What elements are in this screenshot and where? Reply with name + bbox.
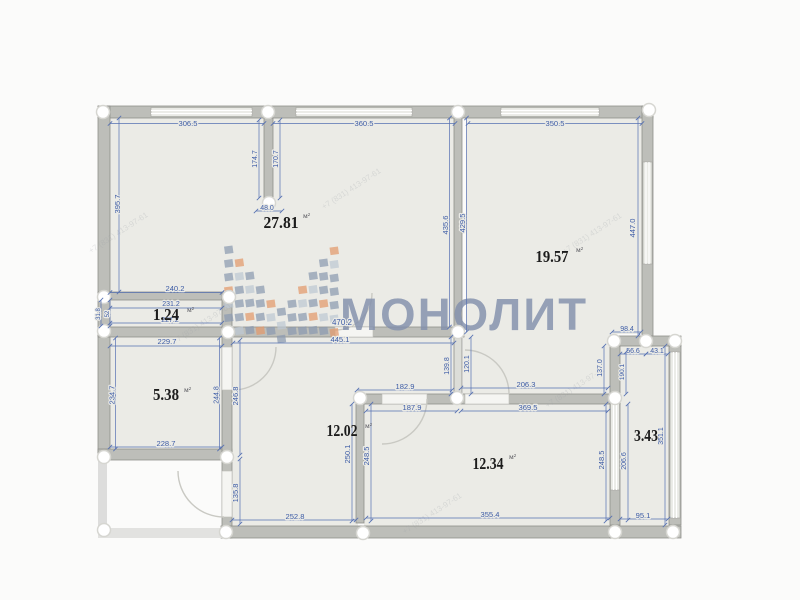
svg-text:м²: м² [576,245,584,254]
svg-text:19.57: 19.57 [536,247,569,266]
svg-text:12.34: 12.34 [473,454,504,473]
svg-text:43.1: 43.1 [650,348,664,355]
svg-text:3.43: 3.43 [634,426,658,445]
svg-text:206.3: 206.3 [516,380,535,389]
svg-text:174.7: 174.7 [252,150,259,168]
svg-text:395.7: 395.7 [113,194,122,213]
svg-text:170.7: 170.7 [273,150,280,168]
svg-text:234.7: 234.7 [108,385,117,404]
svg-text:240.2: 240.2 [165,284,184,293]
svg-text:435.6: 435.6 [441,215,450,234]
svg-text:228.7: 228.7 [156,439,175,448]
svg-text:206.6: 206.6 [621,452,628,470]
svg-text:187.9: 187.9 [402,403,421,412]
svg-text:248.5: 248.5 [597,451,606,470]
svg-text:139.8: 139.8 [444,357,451,375]
svg-text:445.1: 445.1 [330,335,349,344]
svg-text:190.1: 190.1 [619,363,626,380]
svg-text:137.0: 137.0 [597,359,604,377]
svg-text:м²: м² [365,421,373,430]
svg-text:м²: м² [184,385,192,394]
svg-text:369.5: 369.5 [518,403,537,412]
svg-text:360.5: 360.5 [354,119,373,128]
svg-text:229.7: 229.7 [157,337,176,346]
svg-text:27.81: 27.81 [264,213,299,232]
svg-text:246.8: 246.8 [231,387,240,406]
svg-text:250.1: 250.1 [343,445,352,464]
svg-text:351.1: 351.1 [658,427,665,445]
svg-text:1.24: 1.24 [153,305,179,324]
svg-text:98.4: 98.4 [620,326,634,333]
svg-text:м²: м² [509,452,517,461]
svg-text:135.8: 135.8 [231,484,240,503]
svg-text:182.9: 182.9 [395,382,414,391]
svg-text:м²: м² [303,211,311,220]
svg-text:252.8: 252.8 [285,512,304,521]
svg-text:350.5: 350.5 [545,119,564,128]
svg-text:5.38: 5.38 [153,385,179,404]
svg-text:306.5: 306.5 [178,119,197,128]
svg-text:12.02: 12.02 [327,421,358,440]
svg-text:120.1: 120.1 [464,355,471,373]
svg-text:248.5: 248.5 [362,447,371,466]
svg-text:244.8: 244.8 [214,386,221,404]
svg-text:447.0: 447.0 [628,218,637,237]
svg-text:429.5: 429.5 [458,213,467,232]
svg-text:м²: м² [187,305,195,314]
svg-text:95.1: 95.1 [636,511,651,520]
svg-text:48.0: 48.0 [260,205,274,212]
svg-text:470.2: 470.2 [332,318,353,327]
svg-text:355.4: 355.4 [480,510,499,519]
svg-text:56.6: 56.6 [626,348,640,355]
svg-text:31.8: 31.8 [96,308,102,320]
svg-text:52: 52 [105,310,111,317]
